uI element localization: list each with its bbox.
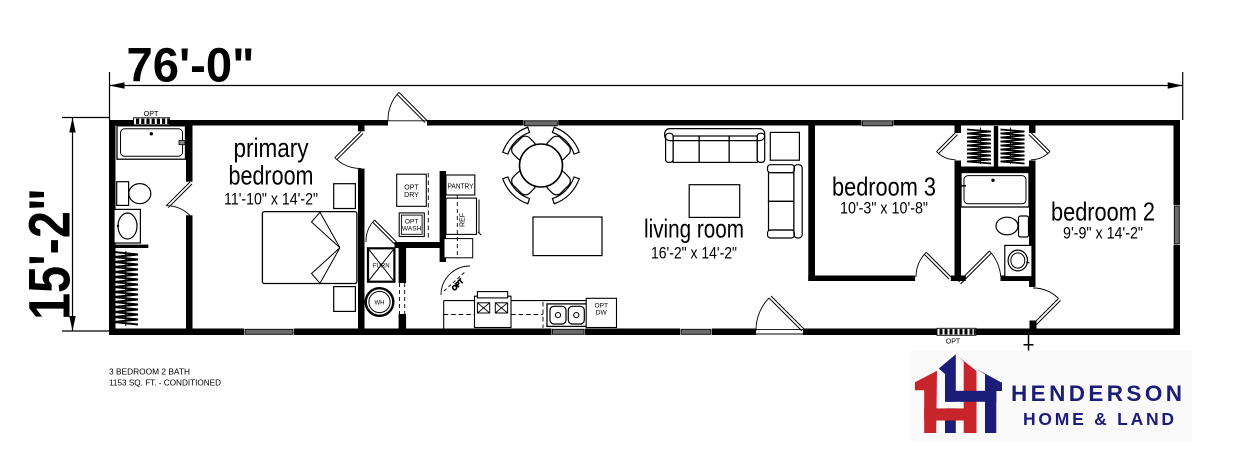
svg-text:REF: REF	[460, 213, 467, 227]
svg-text:bedroom: bedroom	[229, 161, 314, 191]
svg-text:16'-2" x 14'-2": 16'-2" x 14'-2"	[651, 245, 737, 263]
svg-text:HENDERSON: HENDERSON	[1011, 381, 1184, 406]
svg-text:bedroom 2: bedroom 2	[1051, 197, 1155, 227]
svg-text:OPT: OPT	[595, 303, 609, 310]
svg-text:OPT: OPT	[144, 109, 159, 118]
svg-text:11'-10" x 14'-2": 11'-10" x 14'-2"	[224, 191, 318, 209]
svg-text:bedroom 3: bedroom 3	[832, 172, 936, 202]
svg-text:10'-3" x 10'-8": 10'-3" x 10'-8"	[840, 200, 928, 218]
svg-text:WH: WH	[375, 301, 385, 307]
svg-text:DRY: DRY	[404, 192, 419, 199]
svg-text:WASH: WASH	[402, 226, 422, 233]
svg-text:76'-0": 76'-0"	[127, 40, 255, 93]
svg-text:1153 SQ. FT. - CONDITIONED: 1153 SQ. FT. - CONDITIONED	[109, 379, 221, 388]
svg-text:FURN: FURN	[373, 264, 390, 270]
svg-text:OPT: OPT	[405, 219, 419, 226]
svg-text:3 BEDROOM 2 BATH: 3 BEDROOM 2 BATH	[109, 368, 190, 377]
svg-text:HOME & LAND: HOME & LAND	[1023, 409, 1177, 429]
svg-text:OPT: OPT	[946, 339, 961, 346]
svg-text:9'-9" x 14'-2": 9'-9" x 14'-2"	[1063, 225, 1143, 243]
svg-text:PANTRY: PANTRY	[448, 184, 474, 191]
svg-text:15'-2": 15'-2"	[18, 188, 83, 320]
svg-text:primary: primary	[234, 133, 309, 163]
svg-text:OPT: OPT	[404, 185, 419, 192]
svg-text:DW: DW	[596, 310, 608, 317]
